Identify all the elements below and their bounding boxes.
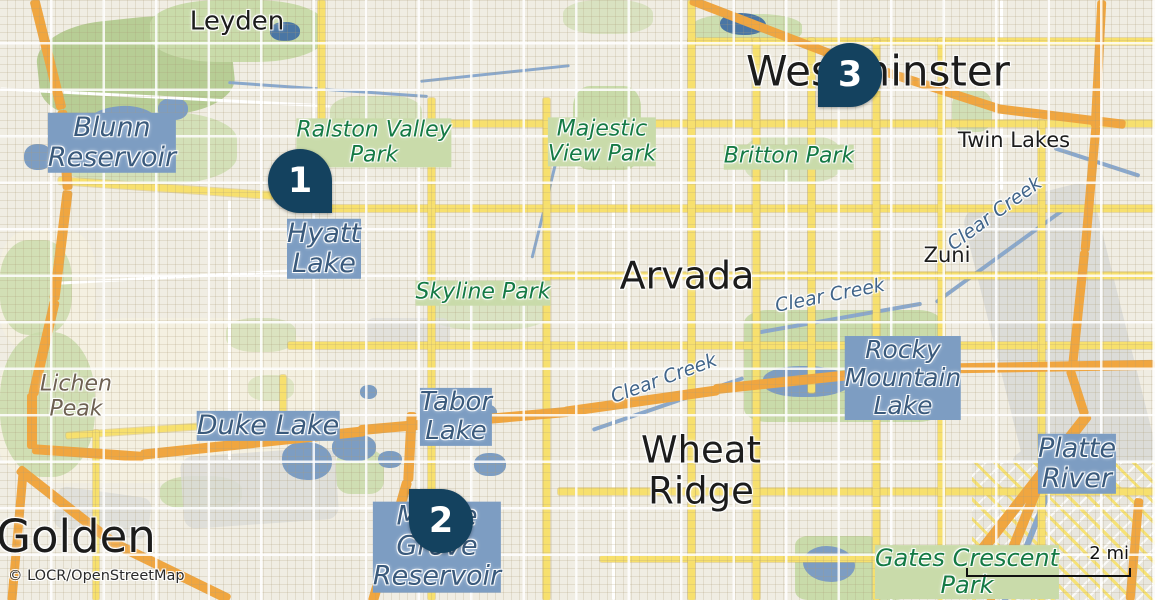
- map-canvas[interactable]: LeydenWestminsterArvadaWheat RidgeGolden…: [0, 0, 1155, 600]
- markers-layer: 123: [0, 0, 1155, 600]
- scale-line: [966, 568, 1131, 577]
- marker-number: 1: [288, 161, 312, 201]
- scale-label: 2 mi: [1089, 543, 1129, 564]
- scale-bar: 2 mi: [966, 545, 1131, 577]
- map-marker-2[interactable]: 2: [409, 489, 473, 553]
- marker-number: 2: [429, 501, 453, 541]
- map-marker-3[interactable]: 3: [818, 43, 882, 107]
- marker-number: 3: [838, 55, 862, 95]
- map-marker-1[interactable]: 1: [268, 149, 332, 213]
- attribution: © LOCR/OpenStreetMap: [8, 568, 185, 584]
